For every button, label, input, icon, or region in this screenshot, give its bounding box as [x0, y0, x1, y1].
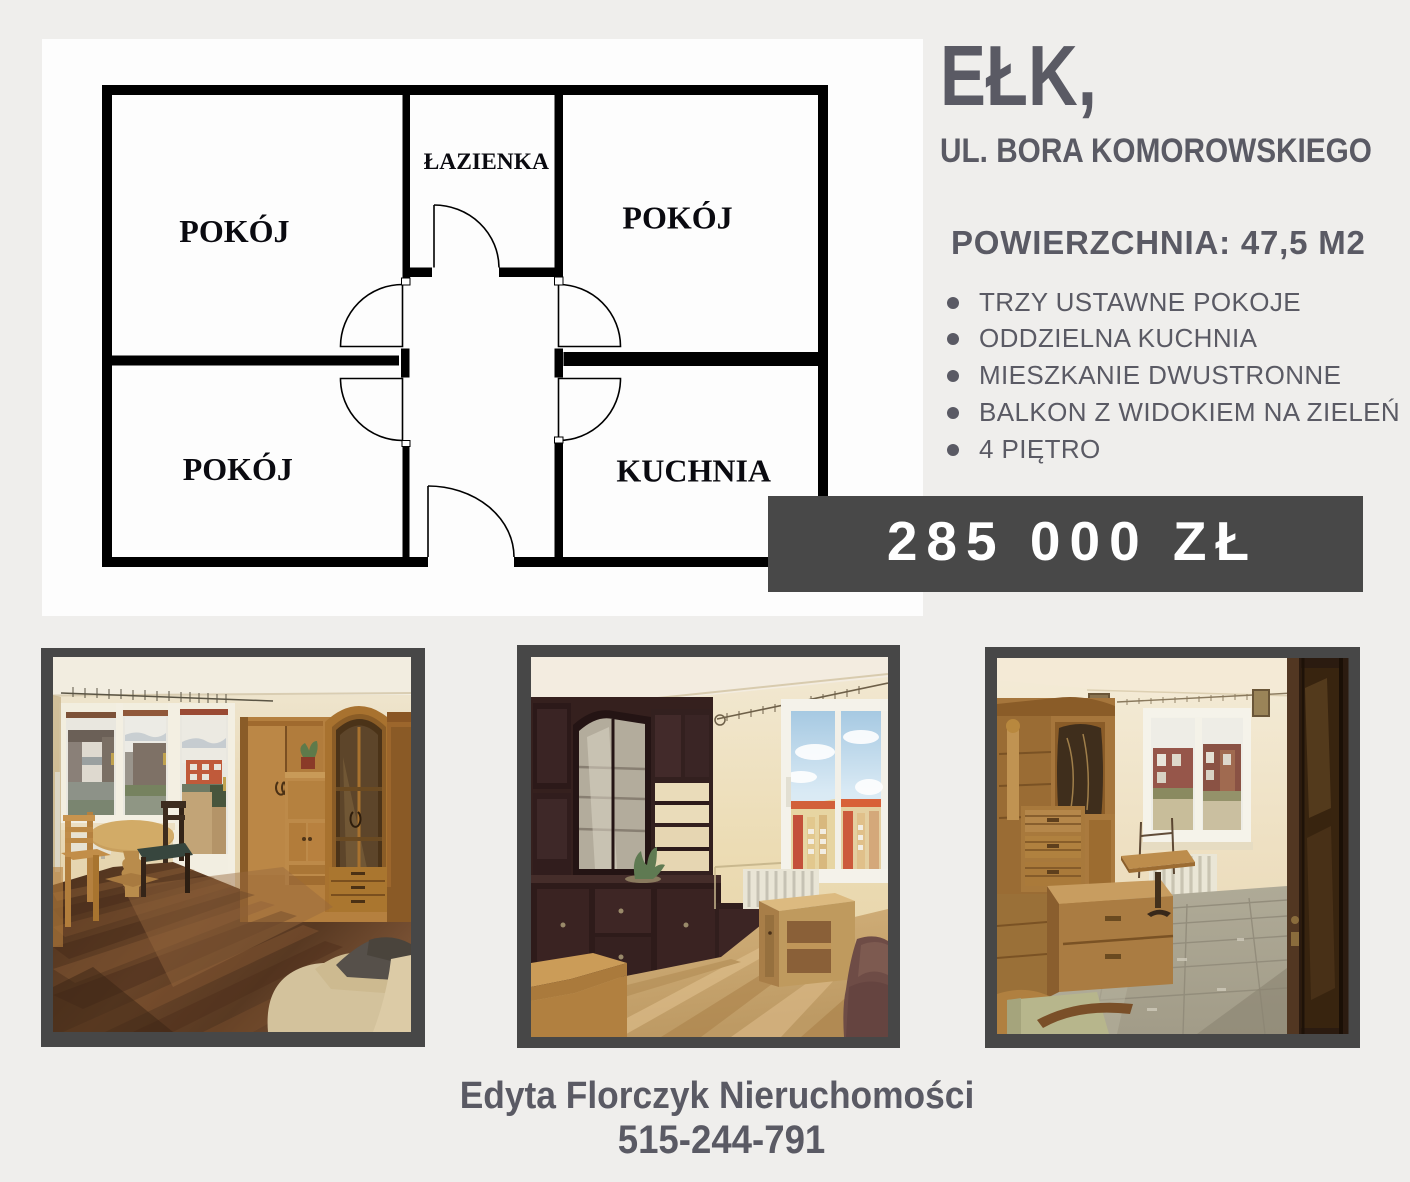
- svg-text:ŁAZIENKA: ŁAZIENKA: [424, 149, 549, 175]
- svg-text:POKÓJ: POKÓJ: [179, 213, 289, 249]
- svg-text:POKÓJ: POKÓJ: [622, 200, 732, 236]
- svg-text:KUCHNIA: KUCHNIA: [616, 452, 771, 488]
- svg-text:POKÓJ: POKÓJ: [183, 451, 293, 487]
